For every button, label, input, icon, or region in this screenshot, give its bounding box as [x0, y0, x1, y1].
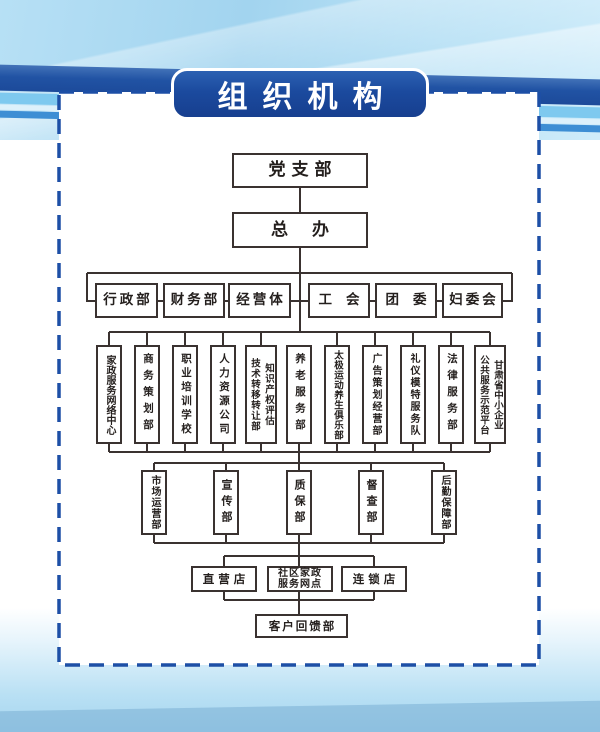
node-legal-service-dept: 法律服务部: [438, 345, 464, 444]
node-market-operations-dept: 市场运营部: [141, 470, 167, 535]
node-vocational-training-school: 职业培训学校: [172, 345, 198, 444]
node-customer-feedback-dept: 客户回馈部: [255, 614, 348, 638]
node-chain-store: 连锁店: [341, 566, 407, 592]
node-housekeeping-network-center: 家政服务网络中心: [96, 345, 122, 444]
node-youth-league: 团委: [375, 283, 437, 318]
node-finance-dept: 财务部: [163, 283, 225, 318]
poster: 组织机构 党支部 总办 行政部 财务部 经营体 工会 团委 妇委会 家政服务网络…: [0, 0, 600, 732]
node-party-branch: 党支部: [232, 153, 368, 188]
node-ad-planning-dept: 广告策划经营部: [362, 345, 388, 444]
node-label-column: 甘肃省中小企业: [490, 347, 504, 442]
node-direct-store: 直营店: [191, 566, 257, 592]
node-label-column: 知识产权评估: [261, 347, 275, 442]
title-banner: 组织机构: [171, 68, 429, 120]
node-elderly-care-dept: 养老服务部: [286, 345, 312, 444]
node-ip-evaluation-tech-transfer-dept: 知识产权评估 技术转移转让部: [245, 345, 277, 444]
node-supervision-dept: 督查部: [358, 470, 384, 535]
node-label-line: 社区家政: [278, 568, 322, 579]
node-admin-dept: 行政部: [95, 283, 158, 318]
node-labor-union: 工会: [308, 283, 370, 318]
node-business-planning-dept: 商务策划部: [134, 345, 160, 444]
node-quality-assurance-dept: 质保部: [286, 470, 312, 535]
node-taichi-health-club: 太极运动养生俱乐部: [324, 345, 350, 444]
page-title: 组织机构: [218, 72, 398, 116]
node-label-column: 公共服务示范平台: [476, 347, 490, 442]
node-gansu-sme-platform: 甘肃省中小企业 公共服务示范平台: [474, 345, 506, 444]
node-publicity-dept: 宣传部: [213, 470, 239, 535]
node-women-committee: 妇委会: [442, 283, 503, 318]
node-business-unit: 经营体: [228, 283, 291, 318]
node-hr-company: 人力资源公司: [210, 345, 236, 444]
node-etiquette-model-team: 礼仪模特服务队: [400, 345, 426, 444]
node-community-service-outlets: 社区家政 服务网点: [267, 566, 333, 592]
node-logistics-support-dept: 后勤保障部: [431, 470, 457, 535]
node-general-office: 总办: [232, 212, 368, 248]
node-label-line: 服务网点: [278, 579, 322, 590]
node-label-column: 技术转移转让部: [247, 347, 261, 442]
